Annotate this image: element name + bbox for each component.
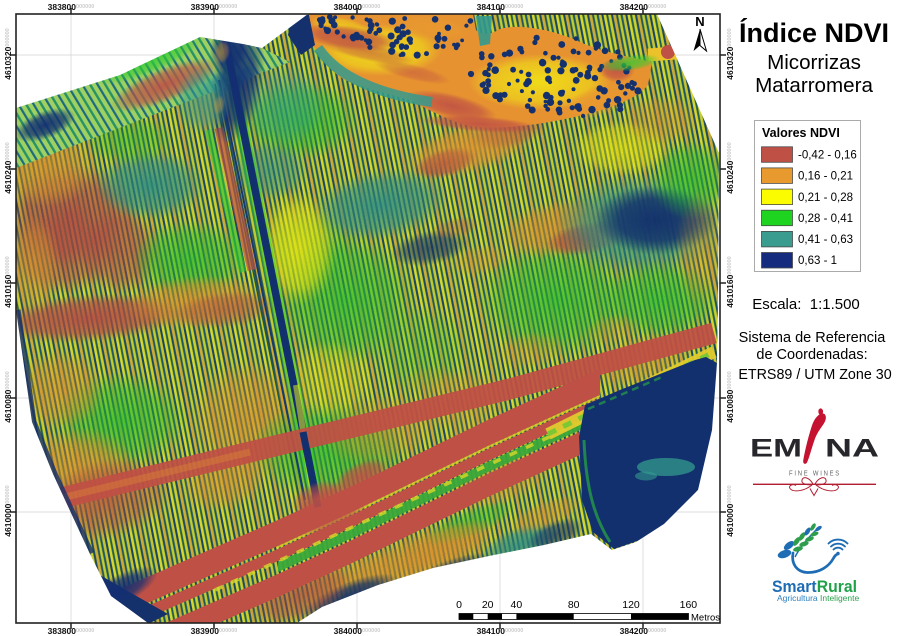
svg-text:20: 20 [482,599,494,611]
svg-text:FINE WINES: FINE WINES [789,469,841,478]
svg-text:Agricultura Inteligente: Agricultura Inteligente [777,593,859,603]
svg-text:80: 80 [568,599,580,611]
svg-text:EM: EM [750,435,802,463]
svg-text:-0,42 - 0,16: -0,42 - 0,16 [798,150,857,162]
svg-text:0,41 - 0,63: 0,41 - 0,63 [798,234,853,246]
svg-text:0,28 - 0,41: 0,28 - 0,41 [798,213,853,225]
svg-text:0,21 - 0,28: 0,21 - 0,28 [798,192,853,204]
svg-text:0,63 - 1: 0,63 - 1 [798,255,837,267]
svg-text:160: 160 [680,599,698,611]
svg-text:0: 0 [456,599,462,611]
svg-text:NA: NA [825,435,879,463]
svg-text:Metros: Metros [691,613,720,624]
svg-text:40: 40 [511,599,523,611]
svg-text:N: N [695,14,704,29]
svg-text:120: 120 [622,599,640,611]
svg-text:0,16 - 0,21: 0,16 - 0,21 [798,171,853,183]
